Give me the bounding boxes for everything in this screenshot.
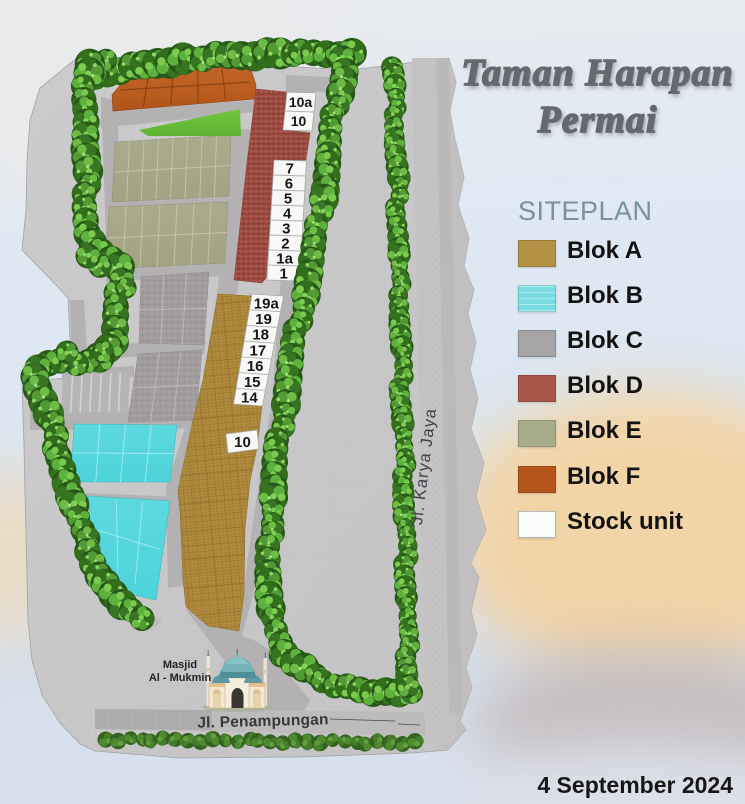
svg-text:19: 19	[255, 311, 272, 328]
svg-text:Al - Mukmin: Al - Mukmin	[149, 672, 212, 684]
svg-text:18: 18	[252, 327, 269, 344]
svg-text:Masjid: Masjid	[163, 659, 197, 671]
svg-text:19a: 19a	[254, 295, 280, 312]
svg-text:10: 10	[234, 434, 251, 451]
svg-text:16: 16	[247, 358, 264, 375]
svg-text:14: 14	[241, 390, 258, 407]
svg-text:10: 10	[291, 113, 307, 129]
svg-text:Jl. Penampungan: Jl. Penampungan	[197, 711, 329, 731]
svg-text:15: 15	[244, 374, 261, 391]
svg-text:17: 17	[250, 342, 267, 359]
svg-text:10a: 10a	[289, 94, 313, 110]
svg-text:1: 1	[280, 265, 288, 282]
